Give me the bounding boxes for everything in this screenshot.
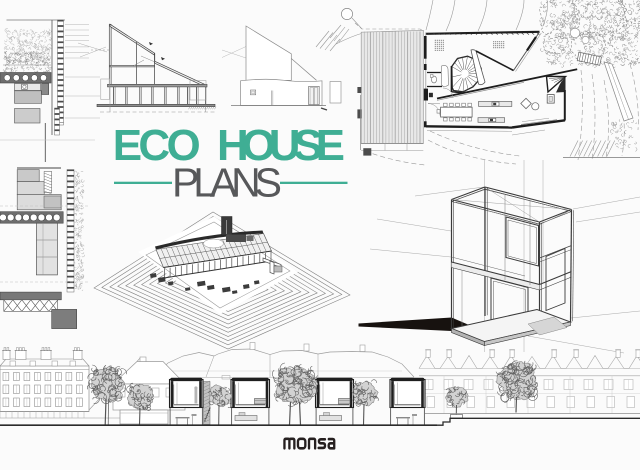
svg-text:PLANS: PLANS [172, 160, 282, 206]
